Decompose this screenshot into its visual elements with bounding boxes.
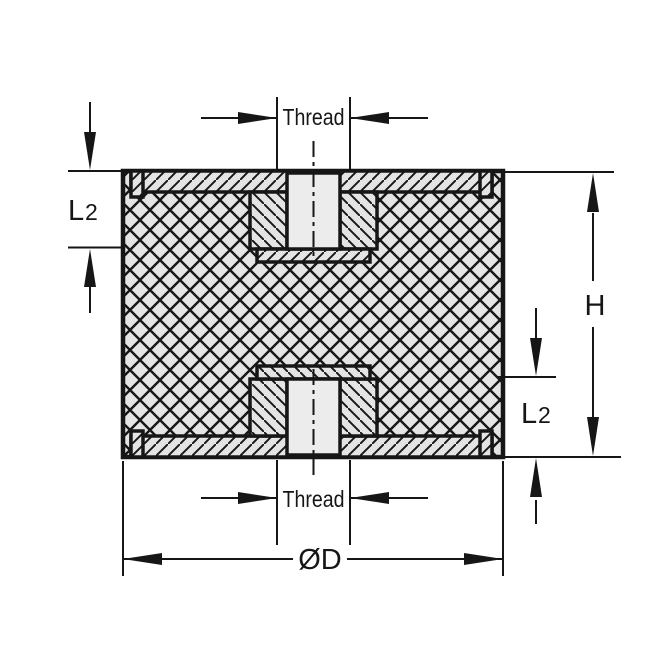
dim-thread-top-label: Thread [283, 104, 345, 130]
arrowhead-down-icon [530, 338, 542, 376]
arrowhead-left-icon [350, 112, 389, 124]
bottom-insert-lip-left [131, 431, 143, 457]
arrowhead-right-icon [238, 492, 277, 504]
dim-l2-right-label-sub: 2 [538, 402, 551, 428]
arrowhead-up-icon [84, 249, 96, 287]
arrowhead-left-icon [123, 553, 162, 565]
arrowhead-down-icon [587, 417, 599, 456]
bottom-insert-boss-wall-right [340, 379, 377, 436]
drawing-canvas: Thread Thread ØD L 2 L 2 [0, 0, 670, 670]
rubber-mount-cross-section-drawing: Thread Thread ØD L 2 L 2 [0, 0, 670, 670]
dim-thread-bottom-label: Thread [283, 486, 345, 512]
top-insert-boss-wall-right [340, 192, 377, 249]
arrowhead-up-icon [587, 173, 599, 212]
bottom-insert-boss-wall-left [250, 379, 287, 436]
arrowhead-right-icon [238, 112, 277, 124]
arrowhead-right-icon [464, 553, 503, 565]
top-insert-lip-left [131, 171, 143, 197]
top-insert-boss-wall-left [250, 192, 287, 249]
dim-l2-left-label: L [68, 195, 84, 227]
top-insert-lip-right [480, 171, 492, 197]
arrowhead-up-icon [530, 458, 542, 497]
arrowhead-down-icon [84, 132, 96, 170]
dim-height-label: H [585, 290, 606, 322]
dim-diameter-label: ØD [298, 544, 342, 576]
dim-l2-right-label: L [521, 398, 537, 430]
dim-l2-left-label-sub: 2 [85, 199, 98, 225]
bottom-insert-lip-right [480, 431, 492, 457]
arrowhead-left-icon [350, 492, 389, 504]
